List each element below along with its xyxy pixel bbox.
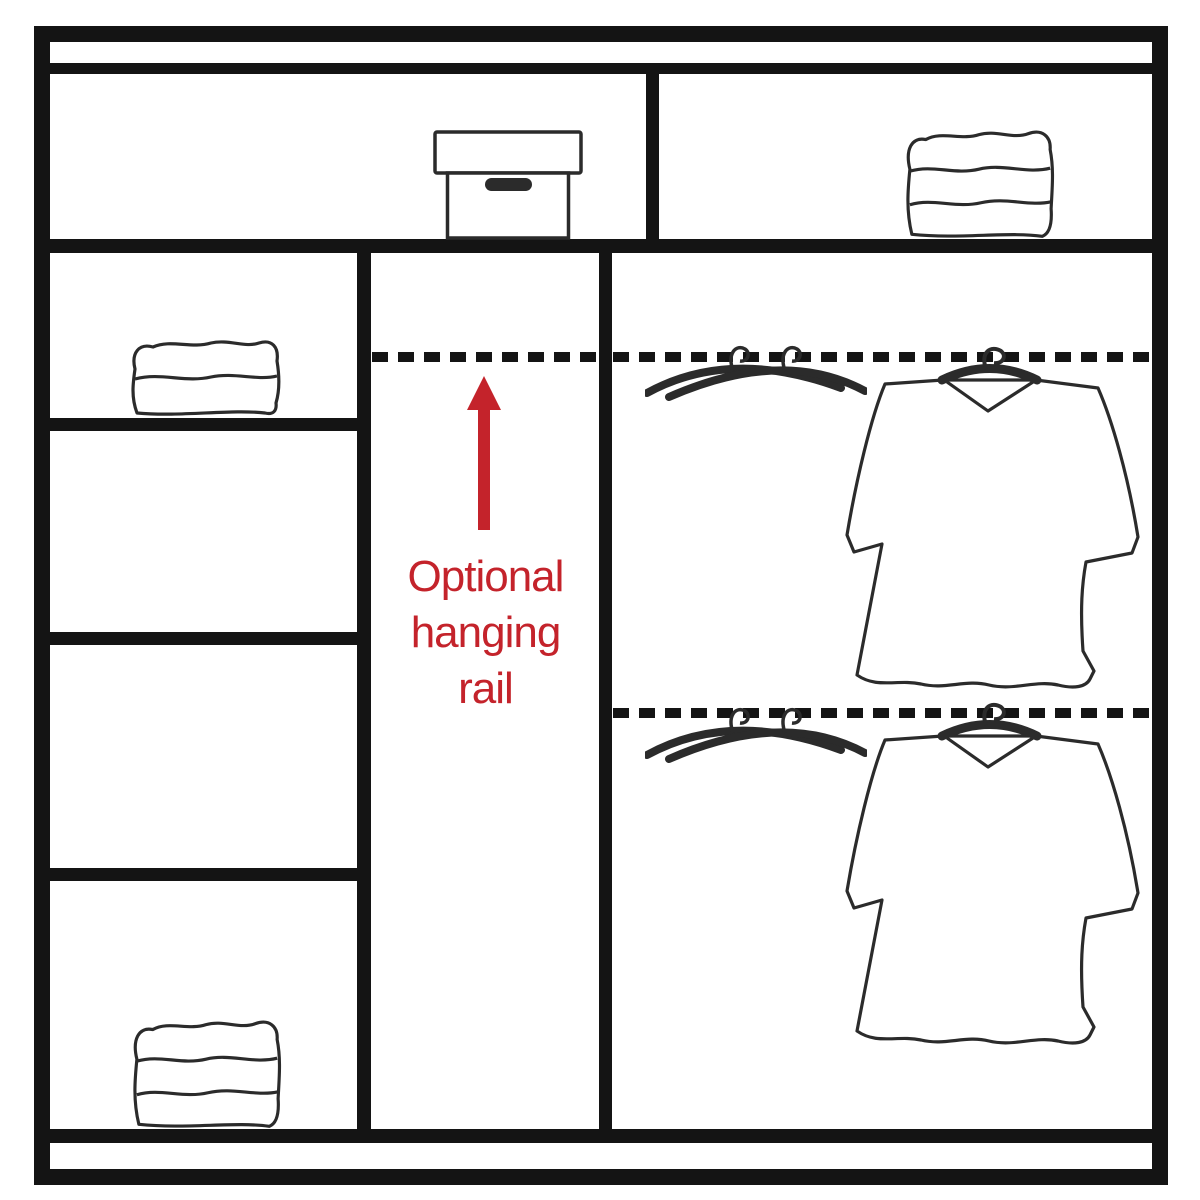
left-shelf-3 — [50, 868, 357, 881]
top-panel-line — [50, 63, 1152, 74]
top-shelf-vertical-divider — [646, 74, 659, 239]
left-shelf-2 — [50, 632, 357, 645]
clothes-hangers-icon — [645, 703, 867, 765]
annotation-line: rail — [371, 661, 600, 717]
folded-towels-icon — [902, 127, 1060, 241]
bottom-shelf-line — [50, 1129, 1152, 1143]
optional-hanging-rail-dashed — [372, 352, 599, 362]
top-shelf-line — [50, 239, 1152, 253]
storage-box-icon — [433, 129, 583, 241]
left-column-divider — [357, 253, 371, 1129]
clothes-hangers-icon — [645, 341, 867, 403]
shirt-on-hanger-icon — [843, 345, 1143, 697]
left-shelf-1 — [50, 418, 357, 431]
annotation-line: Optional — [371, 549, 600, 605]
annotation-text: Optional hanging rail — [371, 549, 600, 717]
annotation-line: hanging — [371, 605, 600, 661]
folded-towels-icon — [127, 337, 287, 419]
middle-column-divider — [599, 253, 612, 1129]
folded-towels-icon — [129, 1017, 287, 1131]
wardrobe-diagram: Optional hanging rail — [0, 0, 1200, 1200]
red-up-arrow-icon — [464, 374, 504, 532]
shirt-on-hanger-icon — [843, 701, 1143, 1053]
